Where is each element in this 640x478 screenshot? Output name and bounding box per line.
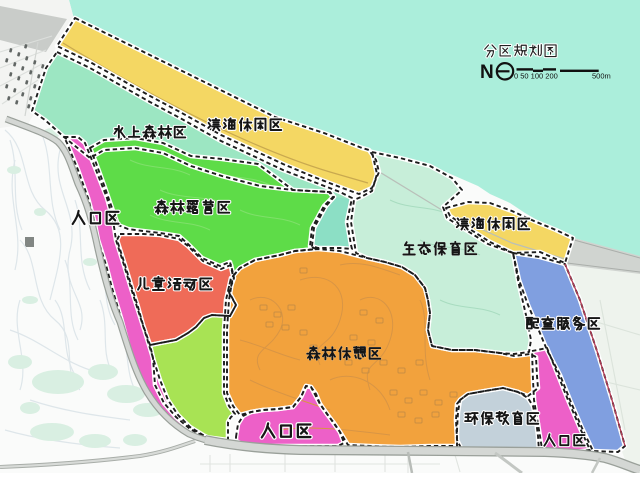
svg-text:500m: 500m [592,72,611,81]
svg-text:N: N [480,62,494,83]
svg-text:0 50 100 200: 0 50 100 200 [514,72,558,81]
